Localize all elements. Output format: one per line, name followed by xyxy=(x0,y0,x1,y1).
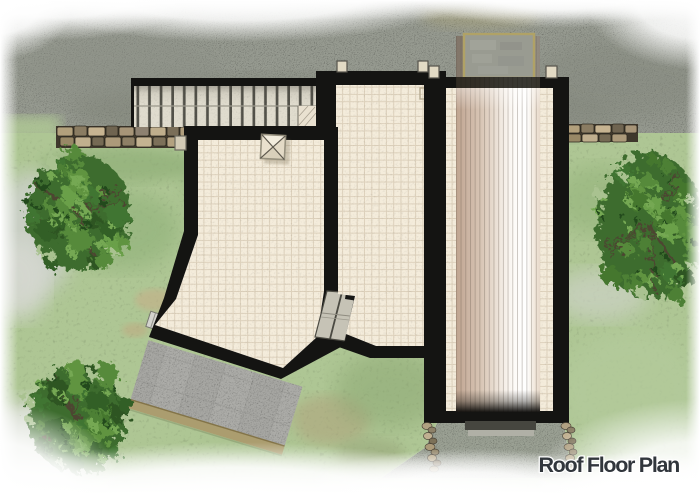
svg-text:Roof Floor Plan: Roof Floor Plan xyxy=(538,453,679,477)
